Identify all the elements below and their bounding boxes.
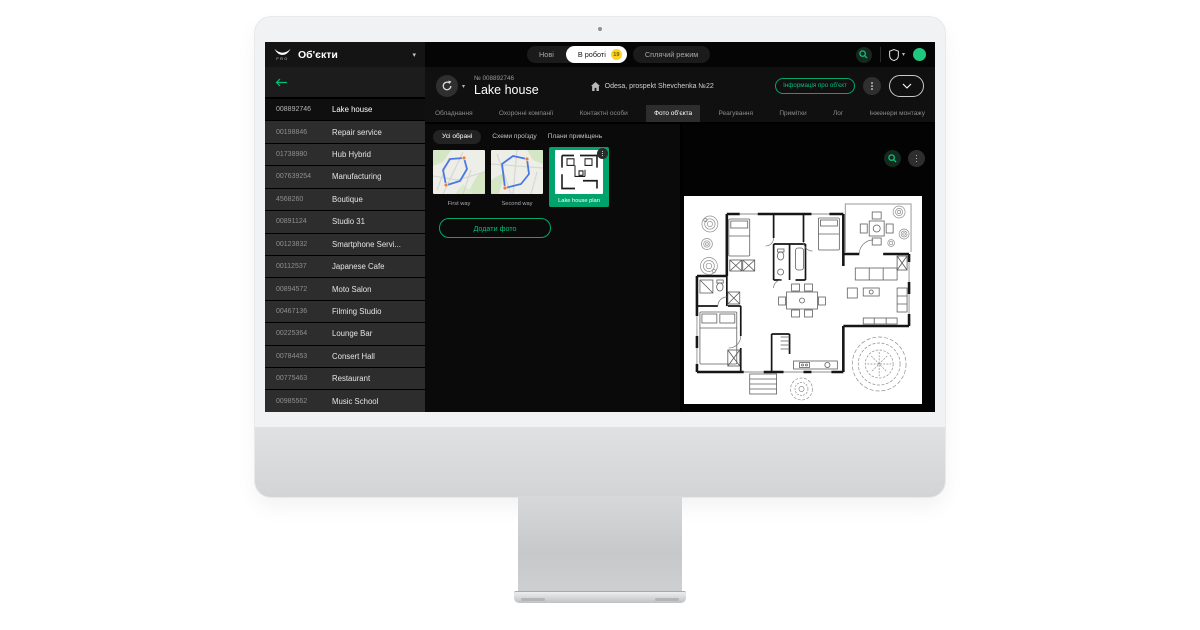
pro-logo-icon: PRO	[274, 48, 291, 61]
object-tab-1[interactable]: Охоронні компанії	[491, 105, 561, 122]
sidebar-header	[265, 67, 425, 97]
object-id: 007639254	[265, 173, 332, 180]
photo-thumb[interactable]: Second way	[491, 150, 543, 207]
address-text: Odesa, prospekt Shevchenka №22	[605, 83, 714, 90]
object-tabs: ОбладнанняОхоронні компаніїКонтактні осо…	[425, 105, 935, 124]
object-id: 00894572	[265, 286, 332, 293]
floor-plan-image	[684, 196, 922, 404]
photo-thumbnail-label: Second way	[491, 201, 543, 207]
app-window: PRO Об'єкти ▾ НовіВ роботі19Сплячий режи…	[265, 42, 935, 412]
object-tab-5[interactable]: Примітки	[771, 105, 814, 122]
photo-thumbnail-image	[491, 150, 543, 194]
home-icon	[591, 82, 600, 91]
object-tab-4[interactable]: Реагування	[710, 105, 761, 122]
object-name: Studio 31	[332, 217, 371, 226]
zoom-search-icon[interactable]	[884, 150, 901, 167]
title-caret-icon[interactable]: ▾	[412, 51, 416, 59]
object-list-item[interactable]: 00985562Music School	[265, 390, 425, 411]
topbar-actions: ▾	[856, 42, 926, 67]
object-name: Smartphone Servi...	[332, 240, 407, 249]
top-bar: PRO Об'єкти ▾ НовіВ роботі19Сплячий режи…	[265, 42, 935, 67]
object-id: 00784453	[265, 353, 332, 360]
objects-sidebar: 008892746Lake house00198846Repair servic…	[265, 67, 425, 412]
object-id: 00225364	[265, 330, 332, 337]
object-tab-0[interactable]: Обладнання	[427, 105, 481, 122]
status-tab-2[interactable]: Сплячий режим	[633, 46, 710, 63]
object-name: Restaurant	[332, 374, 376, 383]
photo-thumbnail-image	[433, 150, 485, 194]
object-info-button[interactable]: Інформація про об'єкт	[775, 78, 855, 94]
back-arrow-icon[interactable]	[275, 78, 288, 87]
monitor-stand-base	[514, 591, 686, 603]
chevron-down-icon: ▾	[902, 51, 905, 58]
refresh-status-icon[interactable]	[436, 75, 458, 97]
page-background: PRO Об'єкти ▾ НовіВ роботі19Сплячий режи…	[0, 0, 1200, 630]
app-logo-block[interactable]: PRO Об'єкти ▾	[265, 42, 425, 67]
objects-list: 008892746Lake house00198846Repair servic…	[265, 99, 425, 412]
photo-thumb[interactable]: First way	[433, 150, 485, 207]
object-list-item[interactable]: 00112537Japanese Cafe	[265, 256, 425, 277]
object-id: 00123832	[265, 241, 332, 248]
object-name: Japanese Cafe	[332, 262, 390, 271]
object-address: Odesa, prospekt Shevchenka №22	[591, 82, 714, 91]
object-name: Filming Studio	[332, 307, 387, 316]
object-id: 00775463	[265, 375, 332, 382]
collapse-button[interactable]	[889, 75, 924, 97]
photos-section: Усі обраніСхеми проїздуПлани приміщень F…	[425, 124, 680, 412]
object-list-item[interactable]: 007639254Manufacturing	[265, 166, 425, 187]
counter-badge: 19	[611, 49, 622, 60]
object-list-item[interactable]: 4568260Boutique	[265, 189, 425, 210]
preview-toolbar	[884, 150, 925, 167]
object-list-item[interactable]: 00225364Lounge Bar	[265, 323, 425, 344]
preview-menu-icon[interactable]	[908, 150, 925, 167]
object-id: 00891124	[265, 218, 332, 225]
object-tab-6[interactable]: Лог	[825, 105, 851, 122]
object-title-block: № 008892746 Lake house	[474, 75, 539, 97]
object-detail-panel: ▾ № 008892746 Lake house Odesa, prospekt…	[425, 67, 935, 412]
add-photo-button[interactable]: Додати фото	[439, 218, 551, 238]
object-id: 008892746	[265, 106, 332, 113]
object-id: 00467136	[265, 308, 332, 315]
photo-thumbnail-label: First way	[433, 201, 485, 207]
object-name: Repair service	[332, 128, 388, 137]
object-name: Hub Hybrid	[332, 150, 377, 159]
object-list-item[interactable]: 00123832Smartphone Servi...	[265, 234, 425, 255]
photo-thumbnail-label: Lake house plan	[552, 198, 606, 204]
account-shield-menu[interactable]: ▾	[889, 49, 905, 61]
camera-dot	[598, 27, 602, 31]
object-name: Lounge Bar	[332, 329, 378, 338]
object-number: № 008892746	[474, 75, 539, 82]
object-list-item[interactable]: 00198846Repair service	[265, 121, 425, 142]
status-tab-1[interactable]: В роботі19	[566, 46, 627, 63]
monitor-stand	[518, 496, 682, 592]
object-id: 01738980	[265, 151, 332, 158]
object-list-item[interactable]: 00467136Filming Studio	[265, 301, 425, 322]
object-name: Music School	[332, 397, 384, 406]
photo-preview-panel	[680, 124, 935, 412]
photo-filter-2[interactable]: Плани приміщень	[548, 133, 602, 140]
logo-pro-label: PRO	[276, 57, 289, 61]
object-tab-3[interactable]: Фото об'єкта	[646, 105, 700, 122]
monitor-chin	[255, 427, 945, 497]
object-id: 00112537	[265, 263, 332, 270]
photo-thumb[interactable]: Lake house plan	[549, 147, 609, 207]
divider	[880, 47, 881, 62]
thumbnail-menu-icon[interactable]	[597, 148, 608, 159]
photo-filter-1[interactable]: Схеми проїзду	[492, 133, 536, 140]
imac-monitor: PRO Об'єкти ▾ НовіВ роботі19Сплячий режи…	[255, 17, 945, 497]
status-tab-group: НовіВ роботі19	[527, 46, 627, 63]
object-name: Consert Hall	[332, 352, 381, 361]
object-name: Moto Salon	[332, 285, 377, 294]
object-id: 4568260	[265, 196, 332, 203]
user-status-avatar[interactable]	[913, 48, 926, 61]
object-name: Manufacturing	[332, 172, 387, 181]
object-title: Lake house	[474, 83, 539, 97]
object-name: Boutique	[332, 195, 369, 204]
object-list-item[interactable]: 00894572Moto Salon	[265, 278, 425, 299]
chevron-down-icon[interactable]: ▾	[462, 83, 465, 90]
object-list-item[interactable]: 008892746Lake house	[265, 99, 425, 120]
object-tab-7[interactable]: Інженери монтажу	[862, 105, 933, 122]
object-list-item[interactable]: 00784453Consert Hall	[265, 346, 425, 367]
app-title: Об'єкти	[298, 49, 338, 61]
object-tab-2[interactable]: Контактні особи	[572, 105, 636, 122]
search-icon[interactable]	[856, 47, 872, 63]
object-id: 00198846	[265, 129, 332, 136]
header-menu-icon[interactable]	[863, 77, 881, 95]
photo-filters: Усі обраніСхеми проїздуПлани приміщень	[433, 129, 680, 144]
object-id: 00985562	[265, 398, 332, 405]
photo-filter-0[interactable]: Усі обрані	[433, 130, 481, 144]
object-list-item[interactable]: 01738980Hub Hybrid	[265, 144, 425, 165]
object-header: ▾ № 008892746 Lake house Odesa, prospekt…	[425, 67, 935, 105]
status-tab-0[interactable]: Нові	[527, 46, 566, 63]
photo-thumbnails: First way Second way Lake house plan	[433, 150, 680, 210]
photo-thumbnail-image	[555, 150, 603, 194]
object-name: Lake house	[332, 105, 378, 114]
shield-icon	[889, 49, 899, 61]
object-list-item[interactable]: 00775463Restaurant	[265, 368, 425, 389]
object-list-item[interactable]: 00891124Studio 31	[265, 211, 425, 232]
status-tabs: НовіВ роботі19Сплячий режим	[527, 46, 710, 63]
